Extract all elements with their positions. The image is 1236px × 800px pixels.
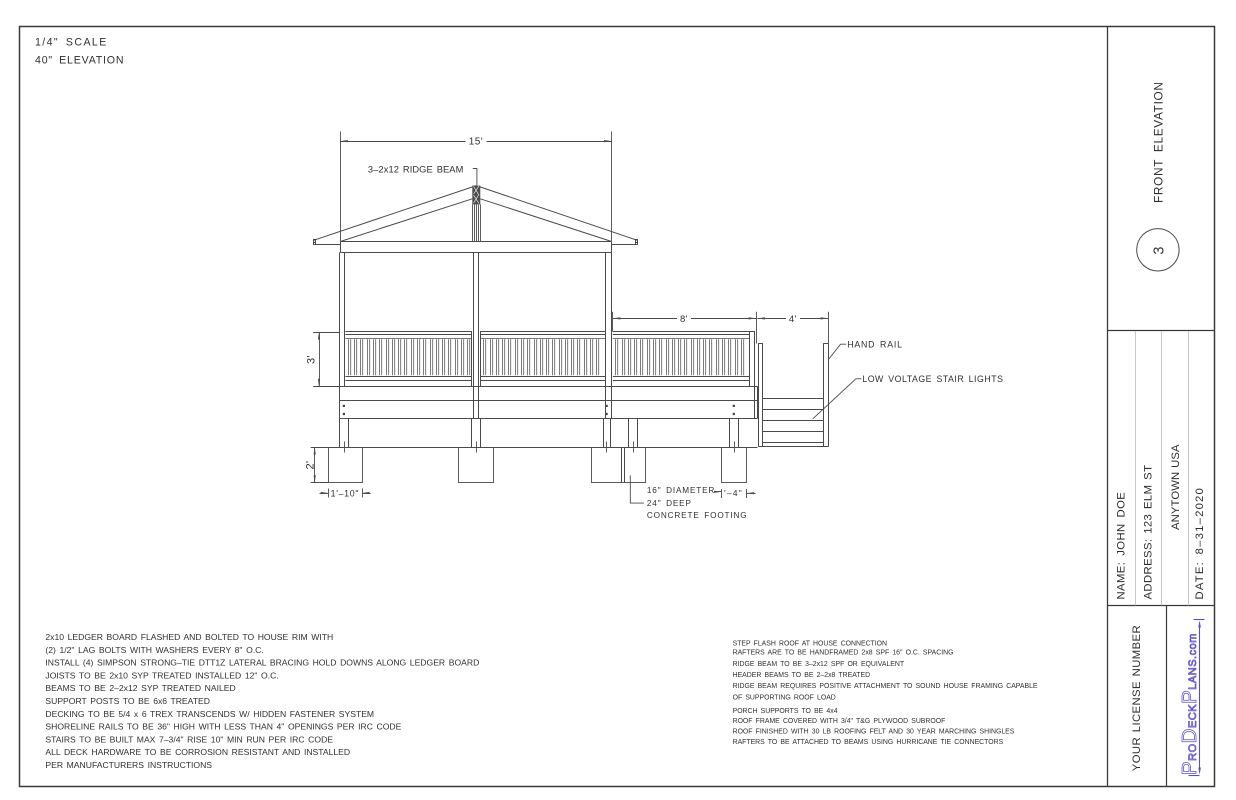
svg-text:SHORELINE RAILS TO BE 36" HIGH: SHORELINE RAILS TO BE 36" HIGH WITH LESS… — [45, 722, 401, 732]
svg-text:HAND RAIL: HAND RAIL — [847, 339, 903, 349]
svg-text:JOISTS TO BE 2x10 SYP TREATED: JOISTS TO BE 2x10 SYP TREATED INSTALLED … — [45, 670, 278, 680]
svg-text:15': 15' — [469, 136, 483, 147]
svg-text:STAIRS TO BE BUILT MAX 7–3/4": STAIRS TO BE BUILT MAX 7–3/4" RISE 10" M… — [45, 734, 333, 744]
svg-text:STEP FLASH ROOF AT HOUSE CONNE: STEP FLASH ROOF AT HOUSE CONNECTION — [733, 641, 887, 648]
svg-text:1/4" SCALE: 1/4" SCALE — [35, 36, 108, 48]
svg-text:RIDGE BEAM TO BE 3–2x12 SPF OR: RIDGE BEAM TO BE 3–2x12 SPF OR EQUIVALEN… — [733, 661, 905, 668]
svg-text:INSTALL (4) SIMPSON STRONG–TIE: INSTALL (4) SIMPSON STRONG–TIE DTT1Z LAT… — [45, 658, 479, 668]
svg-text:FRONT ELEVATION: FRONT ELEVATION — [1152, 81, 1166, 203]
svg-text:ALL DECK HARDWARE TO BE CORROS: ALL DECK HARDWARE TO BE CORROSION RESIST… — [45, 747, 350, 757]
svg-text:ROOF FINISHED WITH 30 LB ROOFI: ROOF FINISHED WITH 30 LB ROOFING FELT AN… — [733, 728, 1015, 735]
svg-text:2': 2' — [305, 460, 317, 469]
svg-text:3': 3' — [306, 355, 318, 364]
svg-text:16" DIAMETER: 16" DIAMETER — [647, 486, 715, 495]
svg-text:YOUR LICENSE NUMBER: YOUR LICENSE NUMBER — [1131, 625, 1143, 771]
svg-text:BEAMS TO BE 2–2x12 SYP TREATED: BEAMS TO BE 2–2x12 SYP TREATED NAILED — [45, 683, 235, 693]
svg-text:RAFTERS ARE TO BE HANDFRAMED 2: RAFTERS ARE TO BE HANDFRAMED 2x8 SPF 16"… — [733, 650, 954, 657]
svg-text:'–4": '–4" — [724, 488, 743, 498]
svg-text:4': 4' — [789, 314, 797, 325]
svg-text:2x10 LEDGER BOARD FLASHED AND: 2x10 LEDGER BOARD FLASHED AND BOLTED TO … — [45, 632, 333, 642]
svg-text:PRODECKPLANS.com: PRODECKPLANS.com — [1178, 633, 1201, 775]
svg-text:24" DEEP: 24" DEEP — [647, 499, 692, 508]
svg-text:1'–10": 1'–10" — [331, 488, 360, 498]
svg-text:DATE: 8–31–2020: DATE: 8–31–2020 — [1194, 487, 1206, 600]
svg-text:40" ELEVATION: 40" ELEVATION — [35, 54, 124, 66]
svg-text:OF SUPPORTING ROOF LOAD: OF SUPPORTING ROOF LOAD — [733, 695, 836, 702]
svg-text:3: 3 — [1152, 247, 1168, 255]
svg-text:ADDRESS: 123 ELM ST: ADDRESS: 123 ELM ST — [1143, 465, 1155, 600]
svg-text:SUPPORT POSTS TO BE 6x6 TREATE: SUPPORT POSTS TO BE 6x6 TREATED — [45, 696, 210, 706]
svg-text:ANYTOWN USA: ANYTOWN USA — [1170, 444, 1182, 530]
svg-text:LOW VOLTAGE STAIR LIGHTS: LOW VOLTAGE STAIR LIGHTS — [862, 374, 1003, 384]
svg-text:ROOF FRAME COVERED WITH 3/4" T: ROOF FRAME COVERED WITH 3/4" T&G PLYWOOD… — [733, 718, 946, 725]
svg-text:HEADER BEAMS TO BE 2–2x8 TREAT: HEADER BEAMS TO BE 2–2x8 TREATED — [733, 672, 870, 679]
svg-text:RIDGE BEAM REQUIRES POSITIVE A: RIDGE BEAM REQUIRES POSITIVE ATTACHMENT … — [733, 683, 1038, 690]
svg-text:PORCH SUPPORTS TO BE 4x4: PORCH SUPPORTS TO BE 4x4 — [733, 708, 838, 715]
svg-text:3–2x12 RIDGE BEAM: 3–2x12 RIDGE BEAM — [368, 165, 464, 175]
svg-text:NAME: JOHN DOE: NAME: JOHN DOE — [1115, 492, 1127, 600]
svg-text:(2) 1/2" LAG BOLTS WITH WASHER: (2) 1/2" LAG BOLTS WITH WASHERS EVERY 8"… — [45, 645, 263, 655]
svg-text:PER MANUFACTURERS INSTRUCTIONS: PER MANUFACTURERS INSTRUCTIONS — [45, 760, 212, 770]
svg-text:CONCRETE FOOTING: CONCRETE FOOTING — [647, 511, 748, 520]
svg-text:RAFTERS TO BE ATTACHED TO BEAM: RAFTERS TO BE ATTACHED TO BEAMS USING HU… — [733, 739, 1004, 746]
svg-text:8': 8' — [680, 314, 688, 325]
svg-text:DECKING TO BE 5/4 x 6 TREX TRA: DECKING TO BE 5/4 x 6 TREX TRANSCENDS W/… — [45, 709, 374, 719]
